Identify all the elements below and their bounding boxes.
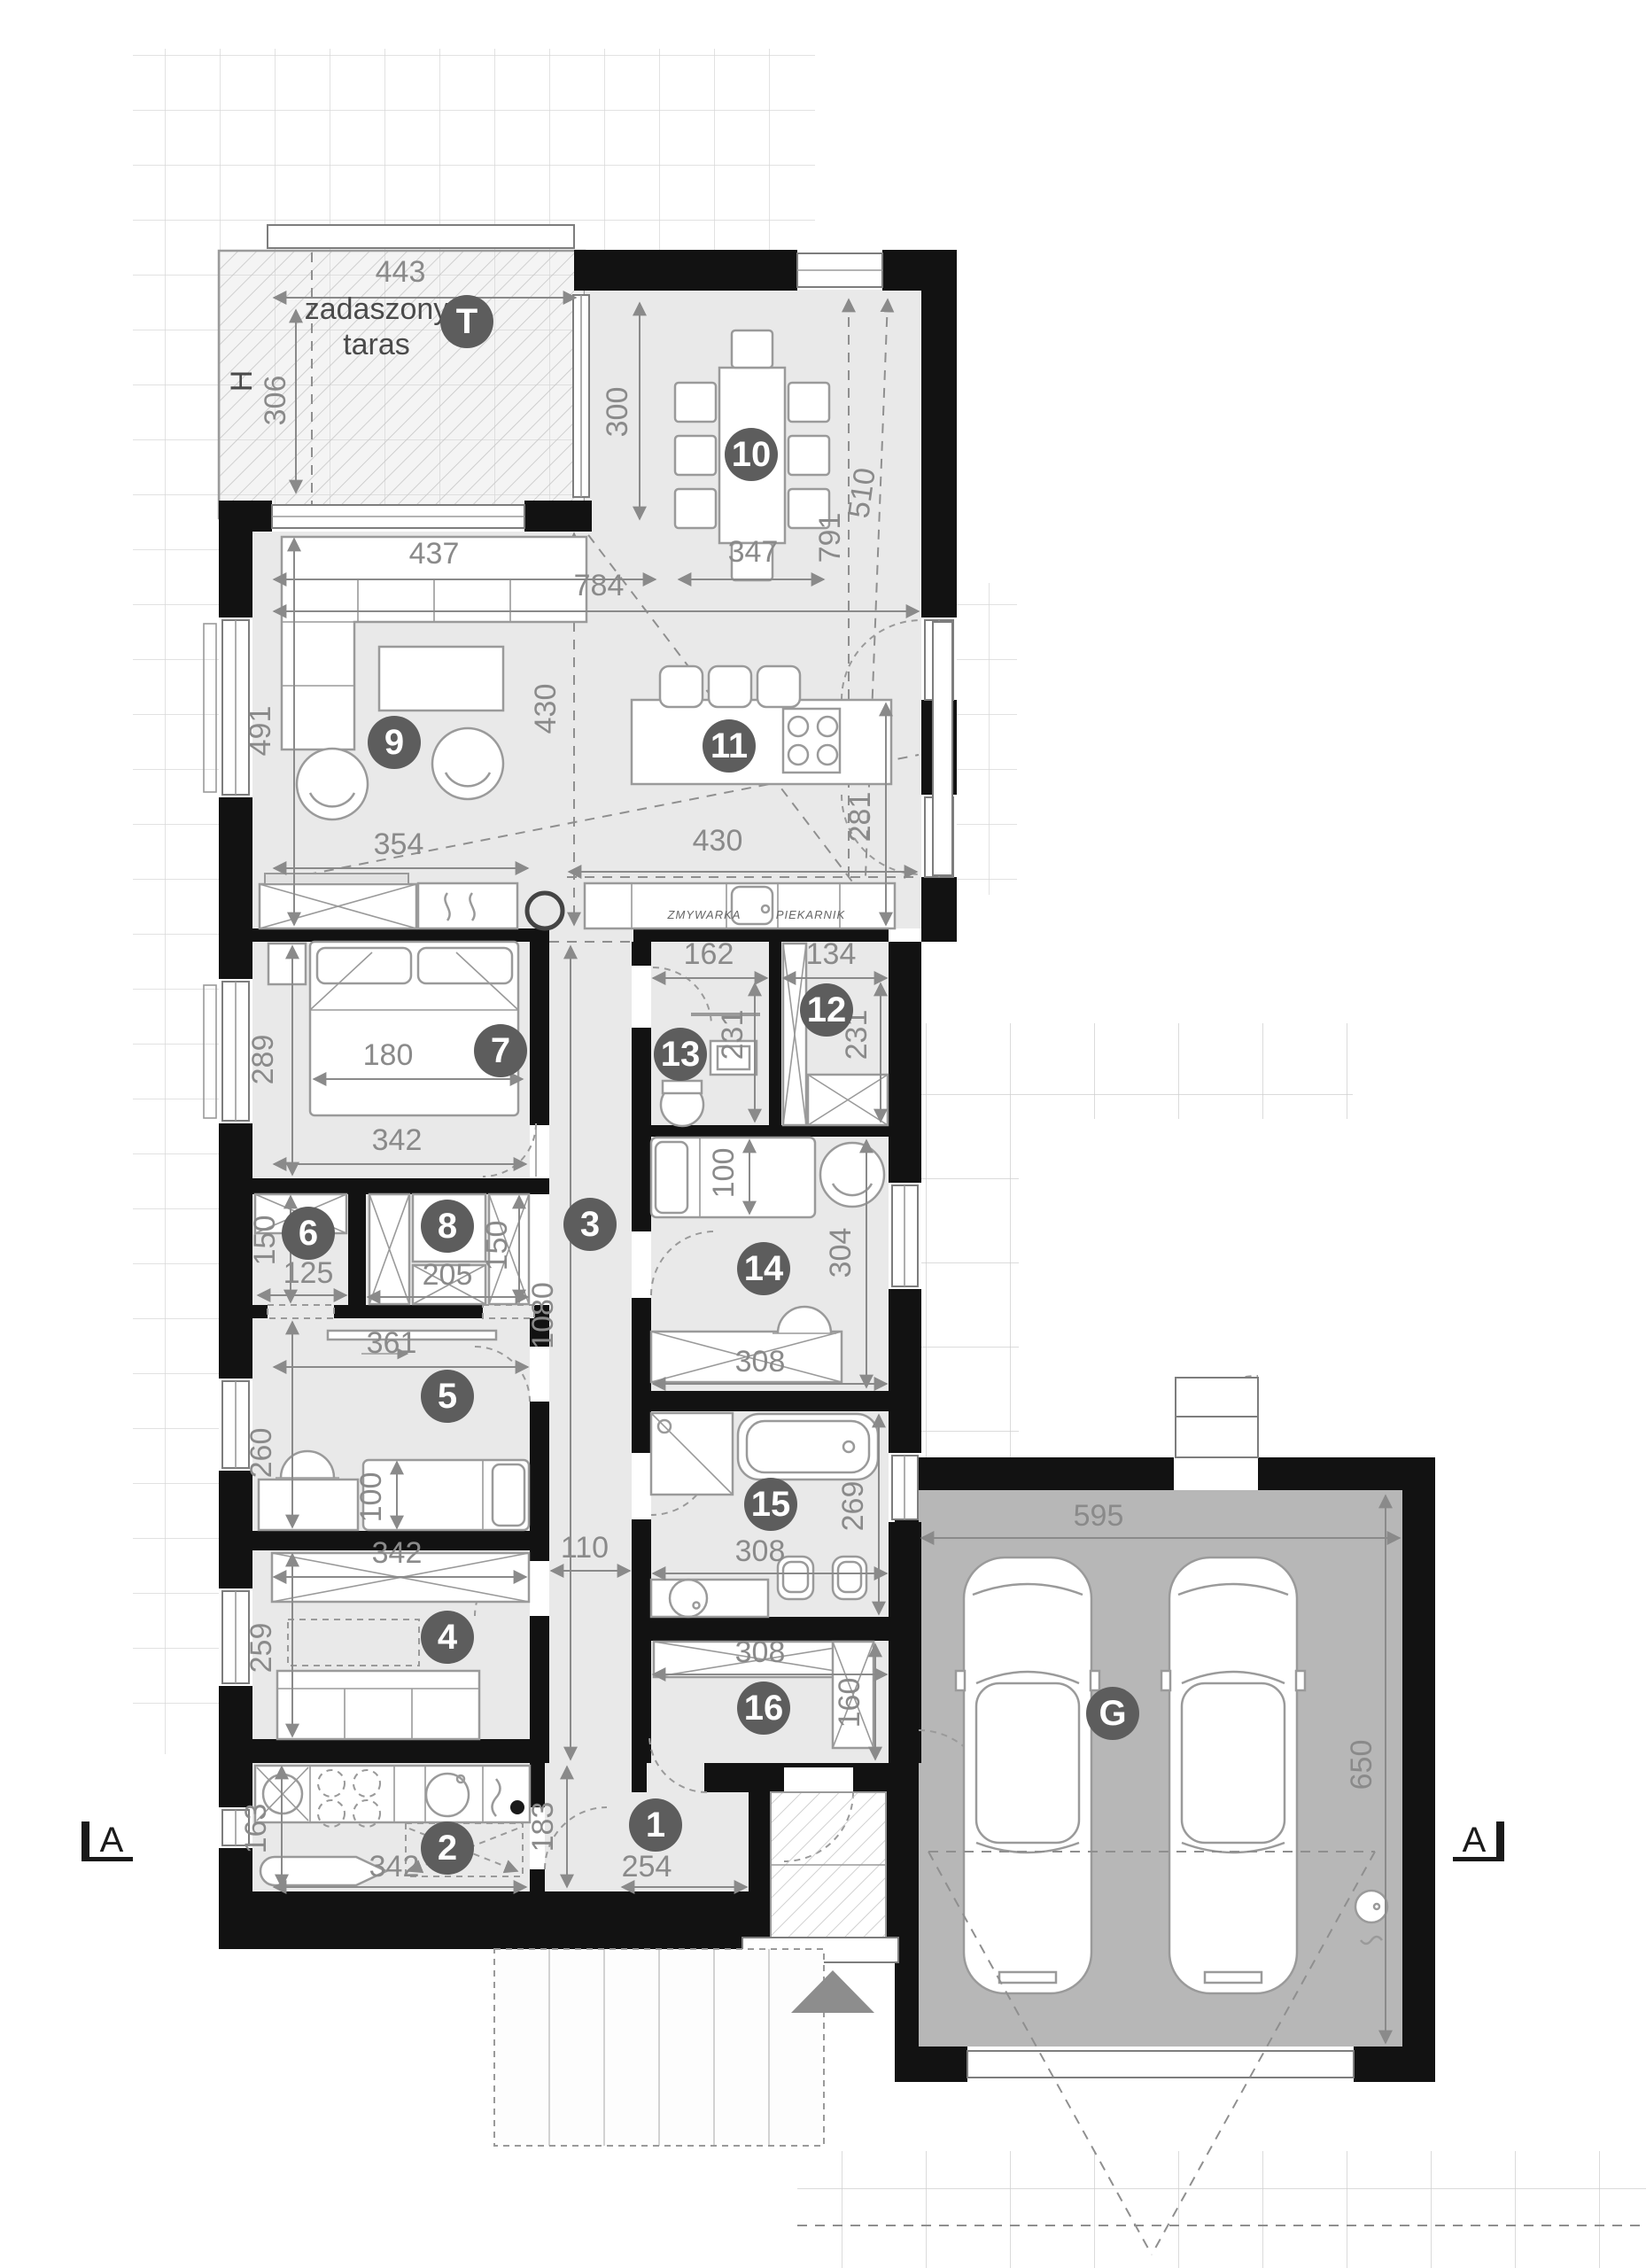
dim-garage-h: 650 <box>1345 1740 1378 1790</box>
paving-left-strip <box>133 251 219 1754</box>
paving-driveway <box>797 2151 1646 2268</box>
dim-diag-791: 791 <box>813 513 847 563</box>
svg-text:15: 15 <box>751 1485 791 1524</box>
room-badge-13: 13 <box>654 1028 707 1081</box>
dim-room5-h: 260 <box>245 1428 278 1479</box>
dim-garage-w: 595 <box>1074 1499 1124 1533</box>
dim-room16-w: 308 <box>735 1635 786 1669</box>
dim-terrace-w: 443 <box>376 255 426 289</box>
room-badge-7: 7 <box>474 1024 527 1077</box>
glass-wall <box>272 505 524 528</box>
dim-open-w: 784 <box>574 569 625 602</box>
garage-exterior-step <box>1176 1378 1258 1417</box>
svg-text:13: 13 <box>661 1035 701 1074</box>
room-badge-4: 4 <box>421 1611 474 1664</box>
svg-text:3: 3 <box>580 1205 600 1244</box>
room-badge-5: 5 <box>421 1370 474 1423</box>
room-badge-9: 9 <box>368 716 421 769</box>
dim-bed7-bed: 180 <box>363 1038 414 1072</box>
room-badge-3: 3 <box>563 1198 617 1251</box>
room-badge-2: 2 <box>421 1821 474 1875</box>
dim-terrace-h: 306 <box>259 376 292 426</box>
dim-dining-table: 347 <box>728 535 779 569</box>
paving-east-strip <box>921 1119 1019 1457</box>
svg-text:5: 5 <box>438 1377 457 1416</box>
dishwasher-label: ZMYWARKA <box>667 908 741 921</box>
paving-east-upper <box>957 583 1017 895</box>
terrace-step-slab <box>268 225 574 248</box>
dim-room16-h: 160 <box>833 1678 866 1728</box>
dim-bed7-w: 342 <box>372 1123 423 1157</box>
dim-living-e: 430 <box>529 684 563 734</box>
dim-room5-w: 361 <box>367 1326 417 1360</box>
room-badge-16: 16 <box>737 1682 790 1735</box>
dim-bed7-h: 289 <box>246 1035 280 1085</box>
dim-room5-bed: 100 <box>354 1472 388 1523</box>
dim-closet8-h: 150 <box>480 1221 514 1271</box>
window-sill-east <box>933 622 952 875</box>
dim-diag-510: 510 <box>842 466 882 520</box>
window <box>797 253 882 287</box>
oven-label: PIEKARNIK <box>776 908 846 921</box>
svg-text:4: 4 <box>438 1618 458 1657</box>
window <box>892 1185 918 1286</box>
section-marker-right: A <box>1453 1821 1504 1861</box>
svg-text:16: 16 <box>744 1689 784 1728</box>
section-letter: A <box>1463 1821 1487 1860</box>
section-marker-left: A <box>82 1821 133 1861</box>
car <box>956 1557 1099 1993</box>
dim-dining-h: 300 <box>601 387 634 438</box>
dim-closet8-w: 205 <box>423 1258 473 1292</box>
dim-hall-h: 183 <box>526 1802 560 1852</box>
room-badge-11: 11 <box>703 719 756 773</box>
dim-bed14-bed: 100 <box>707 1148 741 1199</box>
svg-text:6: 6 <box>299 1214 318 1253</box>
dim-room4-h: 259 <box>245 1623 278 1674</box>
dim-closet6-h: 150 <box>248 1216 282 1266</box>
dim-sofa-w: 437 <box>409 537 460 571</box>
room-badge-garage: G <box>1086 1687 1139 1740</box>
svg-text:10: 10 <box>732 435 772 474</box>
window <box>892 1456 918 1519</box>
dim-living-s: 354 <box>374 827 424 861</box>
dim-room14-h: 304 <box>824 1228 858 1278</box>
svg-text:G: G <box>1099 1694 1126 1733</box>
dim-kitchen-h: 281 <box>843 792 877 843</box>
svg-text:11: 11 <box>710 726 748 765</box>
section-letter: A <box>100 1821 124 1860</box>
svg-text:7: 7 <box>491 1031 510 1070</box>
garage-door <box>967 2051 1354 2078</box>
svg-text:9: 9 <box>384 723 404 762</box>
floor-plan: ZMYWARKA PIEKARNIK <box>0 0 1646 2268</box>
terrace-label-line1: zadaszony <box>305 292 449 326</box>
svg-text:14: 14 <box>744 1249 784 1288</box>
window <box>222 982 249 1121</box>
svg-text:8: 8 <box>438 1207 457 1246</box>
room-badge-8: 8 <box>421 1200 474 1253</box>
room-badge-12: 12 <box>800 983 853 1037</box>
room-badge-6: 6 <box>282 1207 335 1260</box>
room-badge-10: 10 <box>725 428 778 481</box>
dim-corridor-w: 110 <box>561 1531 609 1565</box>
garage-exterior-step <box>1176 1417 1258 1457</box>
dim-pantry-w: 134 <box>806 937 857 971</box>
svg-text:12: 12 <box>807 990 847 1029</box>
car <box>1161 1557 1305 1993</box>
svg-text:2: 2 <box>438 1829 457 1868</box>
paving-top <box>133 49 815 251</box>
dim-room2-w: 342 <box>369 1850 420 1884</box>
dim-wc-w: 162 <box>684 937 734 971</box>
svg-text:T: T <box>456 302 477 341</box>
room-badge-1: 1 <box>629 1798 682 1852</box>
floor-drain <box>1355 1891 1387 1922</box>
h-marker: H <box>225 370 259 392</box>
dim-bath-w: 308 <box>735 1534 786 1568</box>
dim-wc-h: 231 <box>716 1010 749 1060</box>
room-badge-terrace: T <box>440 295 493 348</box>
dim-living-h: 491 <box>244 706 277 757</box>
floor-plan-drawing: ZMYWARKA PIEKARNIK <box>0 0 1646 2268</box>
room-badge-14: 14 <box>737 1242 790 1295</box>
dim-room4-wardrobe: 342 <box>372 1536 423 1570</box>
svg-text:1: 1 <box>646 1806 665 1845</box>
paving-east-band <box>921 1023 1353 1119</box>
terrace-sliding-door <box>573 295 589 497</box>
ironing-board <box>260 1857 386 1885</box>
dim-bath-h: 269 <box>836 1481 870 1532</box>
dim-corridor: 1080 <box>526 1282 560 1349</box>
dim-hall-w: 254 <box>622 1850 672 1884</box>
room-badge-15: 15 <box>744 1478 797 1531</box>
dim-kitchen-w: 430 <box>693 824 743 858</box>
kitchen-counter: ZMYWARKA PIEKARNIK <box>585 883 895 928</box>
dim-room2-h: 163 <box>239 1804 273 1854</box>
dim-room14-w: 308 <box>735 1345 786 1379</box>
dim-closet6-w: 125 <box>283 1256 334 1290</box>
terrace-label-line2: taras <box>343 328 410 361</box>
